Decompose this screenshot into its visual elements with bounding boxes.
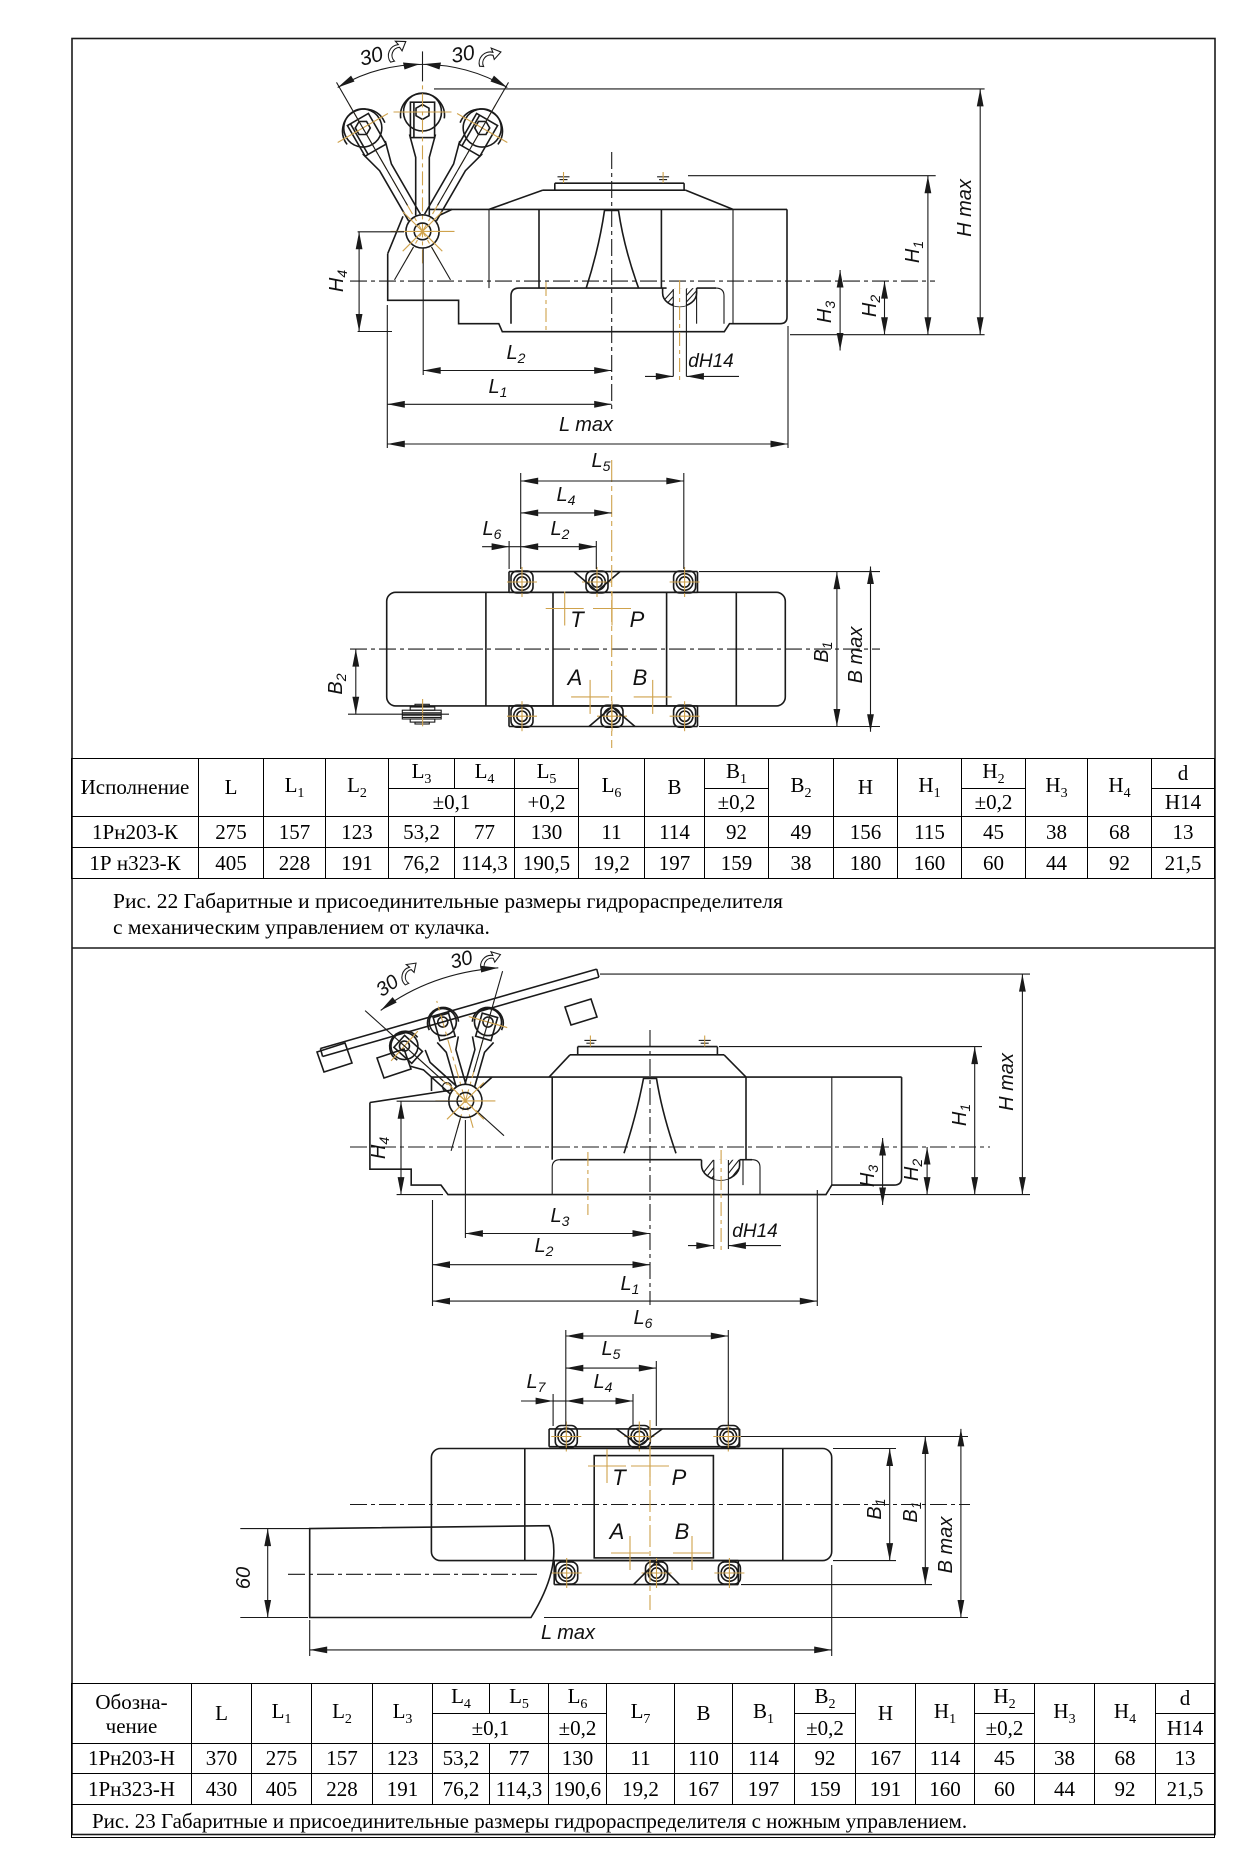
svg-text:L6: L6: [483, 518, 502, 542]
svg-text:60: 60: [233, 1567, 255, 1589]
svg-text:L2: L2: [551, 518, 570, 542]
svg-text:dH14: dH14: [688, 351, 733, 372]
svg-text:L2: L2: [535, 1235, 554, 1259]
svg-text:30: 30: [372, 971, 403, 1002]
svg-text:H max: H max: [996, 1052, 1018, 1111]
svg-text:L5: L5: [602, 1338, 621, 1362]
svg-text:30: 30: [357, 43, 386, 71]
svg-text:L4: L4: [557, 484, 576, 508]
svg-text:H4: H4: [368, 1137, 392, 1159]
svg-text:T: T: [612, 1465, 627, 1490]
svg-text:L2: L2: [507, 342, 526, 366]
svg-text:L1: L1: [489, 376, 508, 400]
svg-text:B2: B2: [325, 673, 349, 694]
svg-text:L7: L7: [527, 1371, 547, 1395]
svg-text:L max: L max: [541, 1622, 596, 1644]
svg-text:dH14: dH14: [732, 1221, 777, 1242]
svg-text:P: P: [630, 607, 645, 632]
svg-text:H max: H max: [954, 178, 976, 237]
svg-text:L max: L max: [559, 414, 614, 436]
svg-text:L4: L4: [594, 1371, 613, 1395]
svg-text:30: 30: [449, 41, 476, 68]
svg-text:H1: H1: [949, 1104, 973, 1126]
svg-text:H2: H2: [901, 1159, 925, 1181]
svg-text:B: B: [675, 1519, 690, 1544]
svg-text:P: P: [672, 1465, 687, 1490]
svg-text:30: 30: [448, 947, 475, 974]
svg-text:B1: B1: [864, 1498, 888, 1519]
svg-text:H1: H1: [902, 241, 926, 263]
svg-text:H3: H3: [857, 1165, 881, 1187]
svg-text:A: A: [566, 665, 583, 690]
svg-text:T: T: [570, 607, 585, 632]
svg-text:A: A: [608, 1519, 625, 1544]
svg-text:B max: B max: [845, 626, 867, 684]
svg-text:H4: H4: [326, 270, 350, 292]
svg-text:L3: L3: [551, 1205, 570, 1229]
svg-text:B: B: [633, 665, 648, 690]
svg-text:L5: L5: [592, 450, 611, 474]
svg-text:H3: H3: [814, 301, 838, 323]
svg-text:L6: L6: [634, 1307, 653, 1331]
svg-text:B max: B max: [935, 1516, 957, 1574]
svg-text:B1: B1: [811, 641, 835, 662]
svg-text:H2: H2: [859, 295, 883, 317]
svg-text:L1: L1: [621, 1273, 640, 1297]
